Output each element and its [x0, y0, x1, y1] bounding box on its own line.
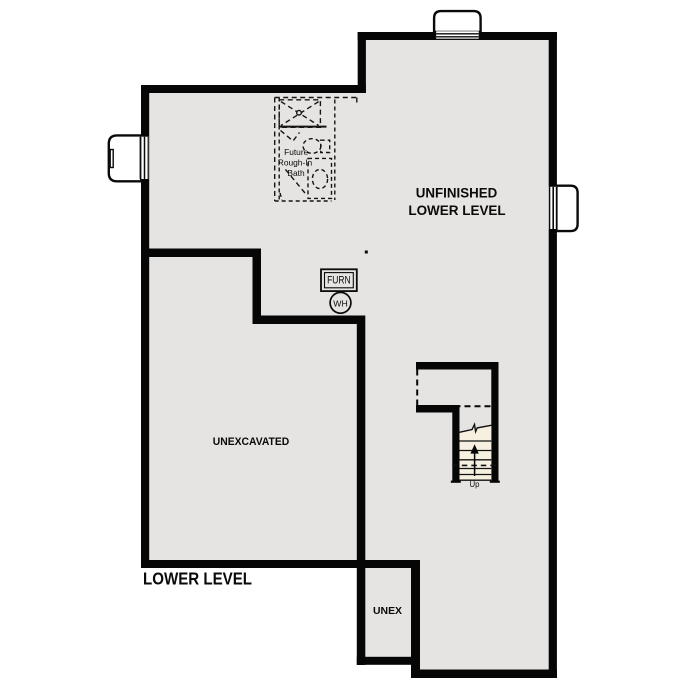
svg-text:UNFINISHED: UNFINISHED	[416, 185, 498, 200]
svg-text:WH: WH	[333, 298, 347, 308]
svg-text:LOWER LEVEL: LOWER LEVEL	[143, 568, 252, 588]
svg-text:LOWER LEVEL: LOWER LEVEL	[408, 203, 505, 218]
svg-text:UNEXCAVATED: UNEXCAVATED	[213, 436, 290, 448]
svg-text:UNEX: UNEX	[373, 606, 402, 617]
svg-text:Future: Future	[284, 147, 309, 157]
svg-text:Rough-In: Rough-In	[278, 157, 313, 167]
svg-text:Up: Up	[470, 480, 481, 489]
svg-text:Bath: Bath	[287, 168, 305, 178]
svg-text:FURN: FURN	[327, 275, 351, 287]
